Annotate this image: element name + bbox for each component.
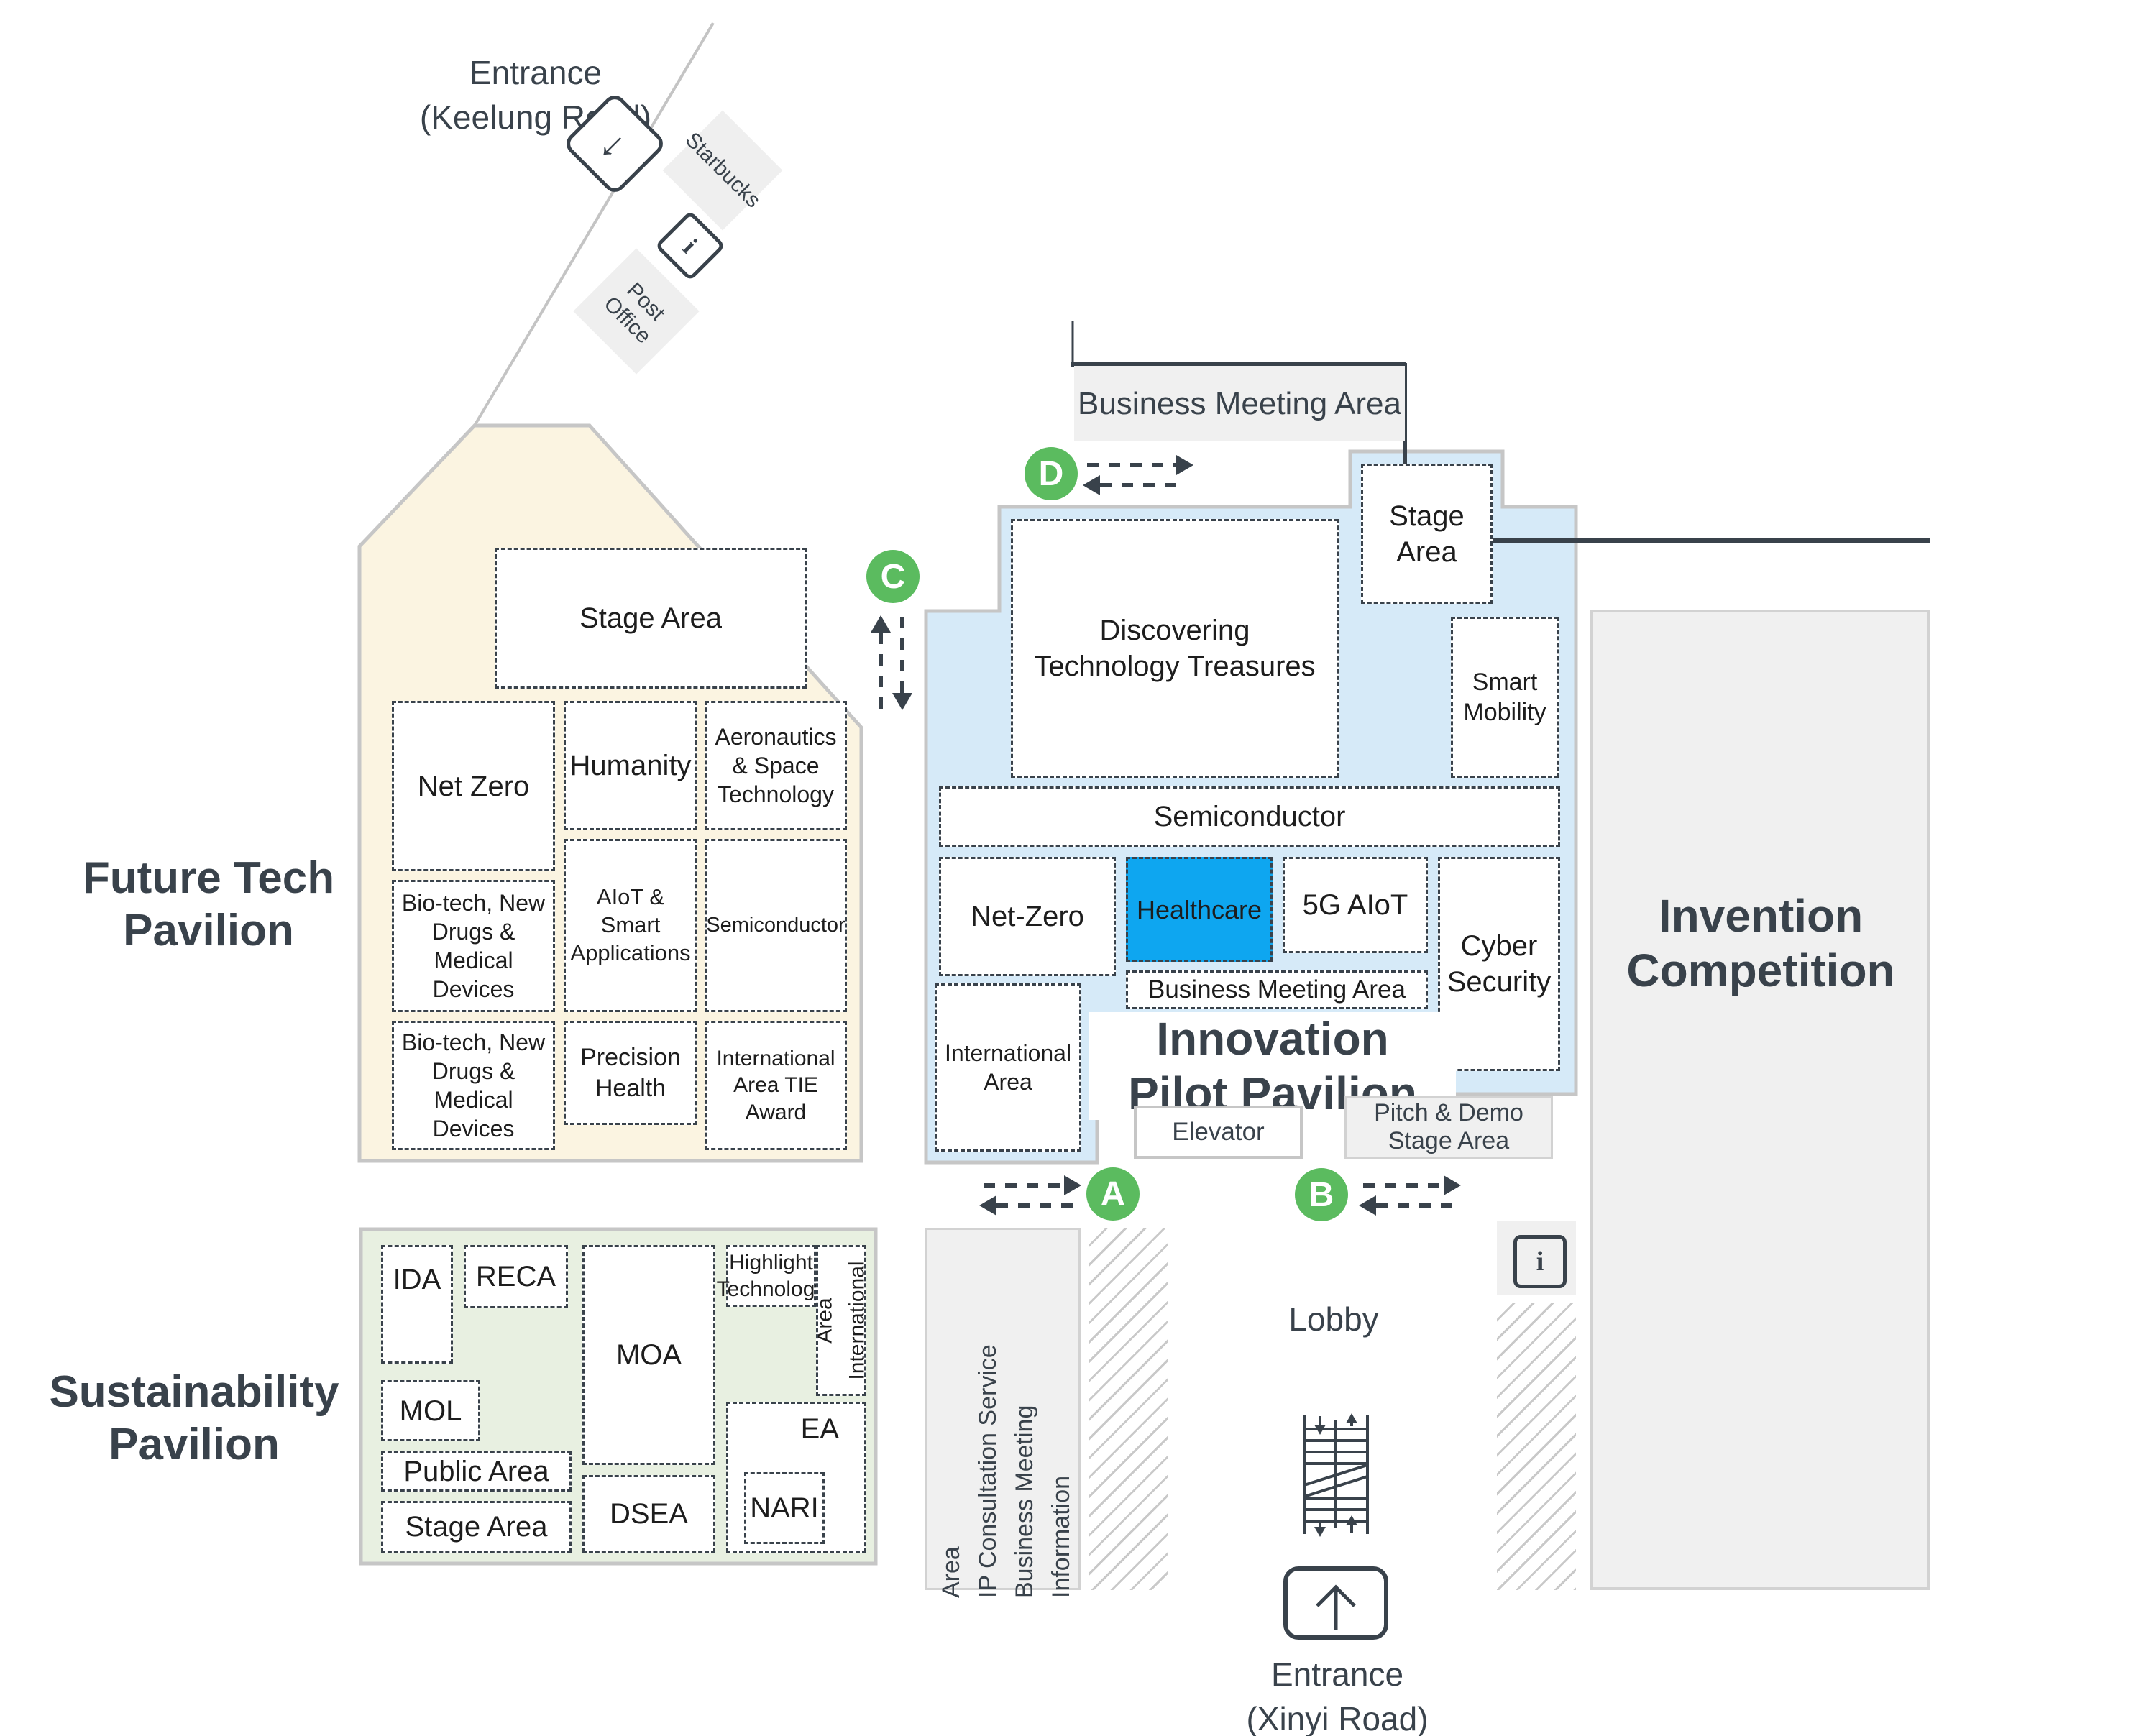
marker-a: A [1086,1167,1140,1221]
room-innovation-net-zero: Net-Zero [939,857,1116,976]
lobby-label: Lobby [1222,1300,1445,1338]
invention-competition-label: InventionCompetition [1593,889,1928,998]
room-innovation-discovering: Discovering Technology Treasures [1011,519,1339,778]
room-future-semiconductor: Semiconductor [705,839,847,1012]
room-innovation-semiconductor: Semiconductor [939,786,1560,847]
information-area-label: Information Business Meeting IP Consulta… [933,1310,1080,1598]
invention-competition-hall: InventionCompetition [1590,610,1930,1590]
marker-d: D [1025,447,1078,500]
room-sus-public-area: Public Area [381,1451,572,1492]
room-sus-nari: NARI [744,1472,825,1544]
room-future-biotech-1: Bio-tech, New Drugs & Medical Devices [392,880,555,1012]
xinyi-entrance-icon [1283,1566,1389,1640]
walkway-hatch-left [1089,1228,1168,1590]
room-innovation-healthcare: Healthcare [1126,857,1273,962]
expo-floor-map: { "colors": { "future_tech_fill": "#FBF4… [0,0,2131,1736]
room-future-international: International Area TIE Award [705,1021,847,1150]
marker-c: C [866,550,920,603]
room-future-humanity: Humanity [564,701,697,830]
elevator: Elevator [1134,1106,1303,1159]
future-tech-title: Future TechPavilion [43,852,374,957]
room-future-aeronautics: Aeronautics & Space Technology [705,701,847,830]
room-innovation-5g-aiot: 5G AIoT [1283,857,1428,953]
room-sus-reca: RECA [464,1245,568,1308]
room-future-stage: Stage Area [495,548,807,689]
room-sus-international: International Area [816,1245,866,1396]
stairs-icon [1298,1410,1373,1538]
marker-b: B [1295,1168,1348,1221]
room-sus-stage: Stage Area [381,1501,572,1553]
walkway-hatch-right [1497,1303,1576,1590]
info-icon-lobby: i [1513,1235,1567,1288]
room-sus-dsea: DSEA [582,1475,715,1553]
room-innovation-stage: Stage Area [1361,464,1493,604]
room-future-aiot: AIoT & Smart Applications [564,839,697,1012]
room-sus-mol: MOL [381,1380,480,1441]
sustainability-title: SustainabilityPavilion [22,1366,367,1471]
information-area: Information Business Meeting IP Consulta… [925,1228,1081,1590]
xinyi-entrance-label: Entrance (Xinyi Road) [1193,1652,1481,1736]
pitch-demo-stage-area: Pitch & Demo Stage Area [1344,1096,1553,1159]
business-meeting-area-top: Business Meeting Area [1074,366,1405,441]
room-future-biotech-2: Bio-tech, New Drugs & Medical Devices [392,1021,555,1150]
room-sus-ida: IDA [381,1245,453,1364]
room-sus-highlight-technology: Highlight Technology [726,1245,816,1307]
room-future-net-zero: Net Zero [392,701,555,871]
room-innovation-business-meeting: Business Meeting Area [1126,970,1428,1009]
room-future-precision-health: Precision Health [564,1021,697,1125]
room-sus-moa: MOA [582,1245,715,1465]
room-innovation-smart-mobility: Smart Mobility [1451,617,1559,778]
